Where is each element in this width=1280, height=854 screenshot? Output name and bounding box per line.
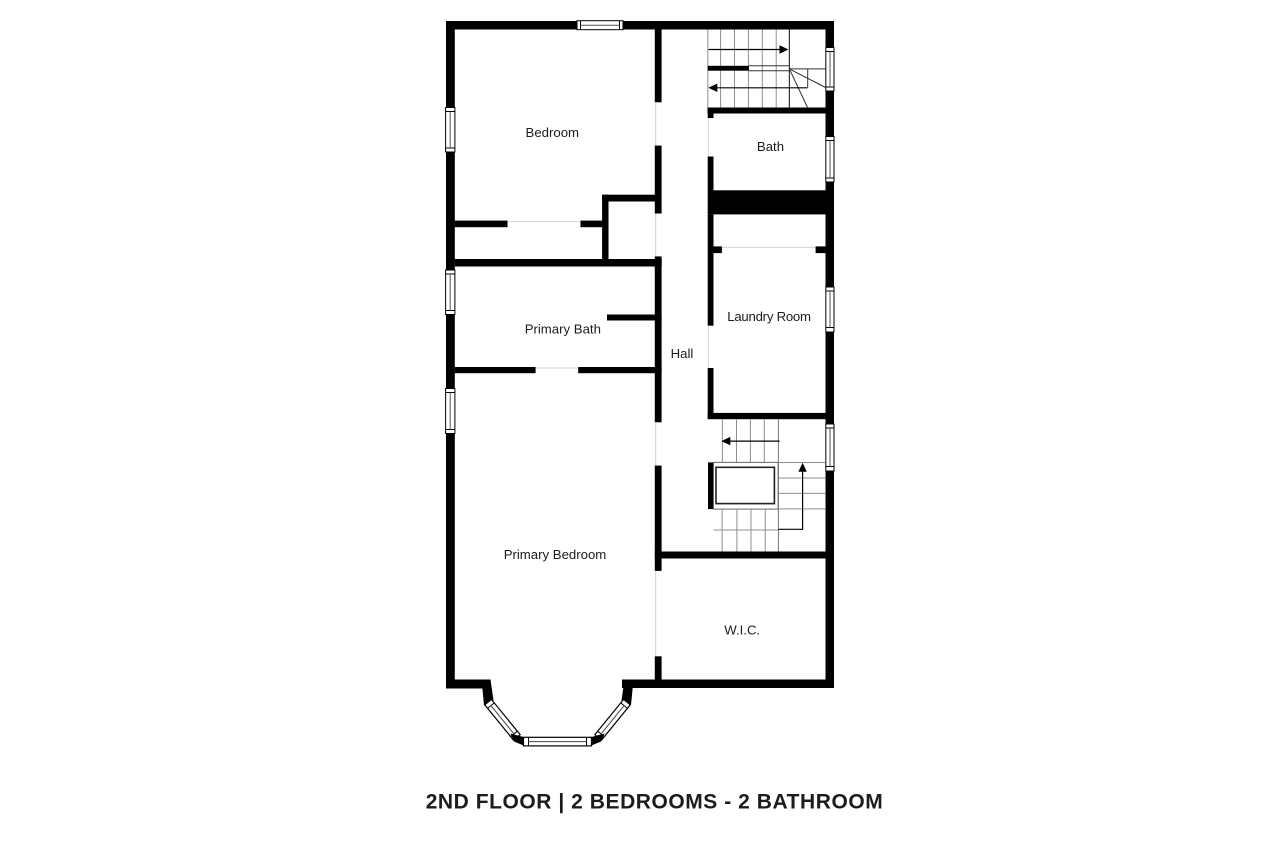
- svg-text:Bath: Bath: [757, 139, 784, 154]
- svg-text:Laundry Room: Laundry Room: [727, 309, 811, 324]
- svg-text:2ND FLOOR | 2 BEDROOMS - 2 BAT: 2ND FLOOR | 2 BEDROOMS - 2 BATHROOM: [426, 791, 884, 814]
- svg-text:W.I.C.: W.I.C.: [724, 623, 760, 638]
- svg-text:Hall: Hall: [671, 346, 694, 361]
- svg-text:Bedroom: Bedroom: [526, 125, 580, 140]
- svg-text:Primary Bath: Primary Bath: [525, 322, 601, 337]
- svg-text:Primary Bedroom: Primary Bedroom: [504, 547, 607, 562]
